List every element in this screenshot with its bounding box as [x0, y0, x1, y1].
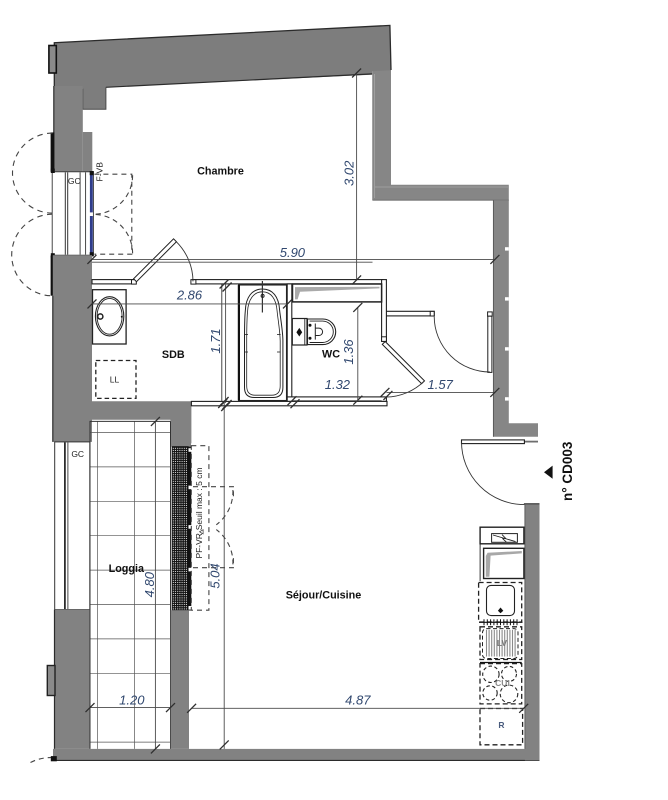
svg-text:Seuil max : 5 cm: Seuil max : 5 cm: [194, 467, 204, 530]
svg-text:PF-VR: PF-VR: [194, 533, 204, 559]
svg-text:Loggia: Loggia: [109, 563, 145, 575]
svg-text:4.87: 4.87: [345, 693, 371, 708]
svg-text:Chambre: Chambre: [197, 165, 244, 177]
svg-text:5.04: 5.04: [208, 563, 223, 588]
svg-text:4.80: 4.80: [142, 571, 157, 597]
svg-text:F-VB: F-VB: [95, 162, 105, 182]
svg-text:R: R: [498, 720, 504, 730]
svg-text:LL: LL: [110, 374, 120, 384]
svg-text:Séjour/Cuisine: Séjour/Cuisine: [286, 590, 362, 602]
svg-text:1.32: 1.32: [325, 377, 351, 392]
svg-text:n° CD003: n° CD003: [560, 441, 575, 501]
svg-text:1.71: 1.71: [208, 328, 223, 353]
svg-text:1.57: 1.57: [428, 377, 454, 392]
svg-text:SDB: SDB: [162, 349, 185, 361]
svg-text:3.02: 3.02: [342, 160, 357, 186]
svg-text:CUI: CUI: [495, 678, 510, 688]
svg-text:1.20: 1.20: [119, 693, 145, 708]
svg-text:LV: LV: [497, 638, 508, 648]
svg-text:2.86: 2.86: [176, 287, 203, 302]
svg-text:GC: GC: [68, 176, 81, 186]
svg-text:WC: WC: [322, 349, 340, 361]
svg-text:GC: GC: [71, 449, 84, 459]
svg-text:1.36: 1.36: [341, 339, 356, 365]
svg-text:5.90: 5.90: [280, 245, 306, 260]
